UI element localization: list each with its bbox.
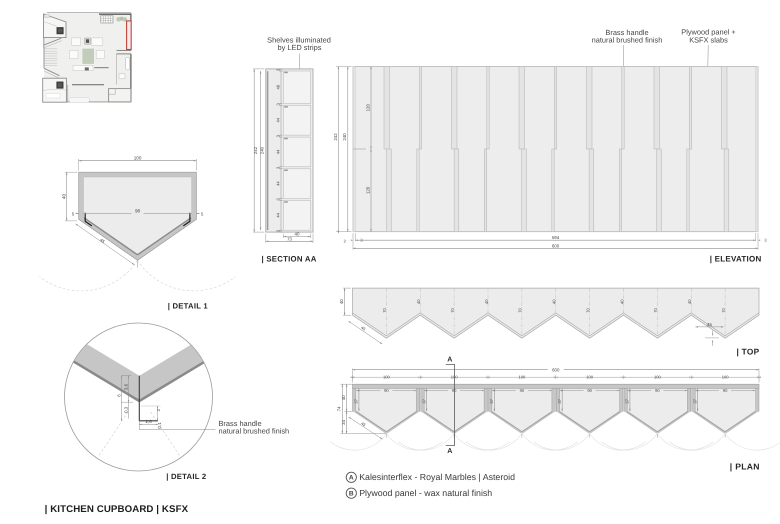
svg-text:40: 40 [61,194,66,200]
svg-text:natural brushed finish: natural brushed finish [592,36,663,45]
svg-text:90: 90 [723,388,728,393]
svg-text:44: 44 [276,149,281,154]
svg-text:100: 100 [722,374,730,379]
svg-text:100: 100 [586,374,594,379]
svg-text:100: 100 [654,374,662,379]
svg-text:40: 40 [484,299,489,304]
svg-text:44: 44 [276,181,281,186]
svg-text:Plywood panel - wax natural fi: Plywood panel - wax natural finish [359,488,492,498]
svg-text:37: 37 [354,398,359,403]
svg-text:| SECTION AA: | SECTION AA [262,254,317,263]
svg-text:37: 37 [625,398,630,403]
svg-text:40: 40 [619,299,624,304]
svg-text:594: 594 [552,235,560,240]
svg-text:KSFX slabs: KSFX slabs [689,36,728,45]
svg-text:74: 74 [337,406,342,411]
svg-text:70: 70 [518,308,523,313]
svg-text:| KITCHEN CUPBOARD | KSFX: | KITCHEN CUPBOARD | KSFX [45,504,189,515]
svg-text:98: 98 [135,208,141,213]
svg-text:natural brushed finish: natural brushed finish [219,427,290,436]
svg-text:70: 70 [653,308,658,313]
svg-text:45: 45 [99,237,106,244]
svg-text:A: A [349,475,354,482]
svg-text:A: A [447,356,452,364]
svg-text:240: 240 [260,146,265,154]
svg-text:| DETAIL 2: | DETAIL 2 [166,472,206,481]
svg-text:| PLAN: | PLAN [730,462,760,472]
svg-text:242: 242 [333,133,338,141]
svg-text:3,6: 3,6 [124,383,129,390]
svg-text:240: 240 [342,133,347,141]
svg-text:40: 40 [552,299,557,304]
svg-text:120: 120 [365,104,370,112]
svg-text:| TOP: | TOP [736,347,759,357]
svg-text:120: 120 [365,186,370,194]
svg-text:B: B [349,491,354,498]
svg-text:45: 45 [360,325,367,332]
svg-text:600: 600 [552,243,560,248]
svg-text:70: 70 [585,308,590,313]
svg-text:70: 70 [382,308,387,313]
svg-text:40: 40 [341,395,346,400]
svg-text:45: 45 [360,421,367,428]
svg-text:45: 45 [707,322,712,327]
svg-text:| DETAIL 1: | DETAIL 1 [168,302,209,311]
svg-text:2: 2 [344,239,347,244]
svg-text:0,1: 0,1 [157,422,162,429]
svg-text:73: 73 [287,236,292,241]
svg-text:A: A [447,447,452,455]
svg-text:5: 5 [72,211,75,216]
svg-text:37: 37 [421,398,426,403]
svg-text:3: 3 [764,238,767,243]
svg-text:90: 90 [655,388,660,393]
svg-text:70: 70 [450,308,455,313]
svg-text:40: 40 [687,299,692,304]
svg-text:100: 100 [383,374,391,379]
svg-text:100: 100 [134,156,142,161]
svg-text:2,6: 2,6 [146,419,153,424]
svg-text:37: 37 [489,398,494,403]
svg-text:600: 600 [552,368,560,373]
svg-text:34: 34 [341,419,346,424]
svg-text:37: 37 [692,398,697,403]
svg-text:90: 90 [384,388,389,393]
svg-text:0,3: 0,3 [124,406,129,413]
svg-text:40: 40 [295,232,300,237]
svg-text:40: 40 [339,299,344,304]
svg-text:70: 70 [721,308,726,313]
svg-text:242: 242 [253,146,258,154]
svg-text:90: 90 [520,388,525,393]
svg-text:100: 100 [518,374,526,379]
svg-text:Kalesinterflex - Royal Marbles: Kalesinterflex - Royal Marbles | Asteroi… [359,472,515,482]
svg-text:48: 48 [276,84,281,89]
svg-text:40: 40 [416,299,421,304]
svg-text:90: 90 [587,388,592,393]
svg-text:37: 37 [557,398,562,403]
svg-text:44: 44 [276,117,281,122]
svg-text:5: 5 [201,211,204,216]
svg-text:| ELEVATION: | ELEVATION [710,254,762,263]
svg-text:44: 44 [276,212,281,217]
svg-text:by LED strips: by LED strips [278,43,322,52]
